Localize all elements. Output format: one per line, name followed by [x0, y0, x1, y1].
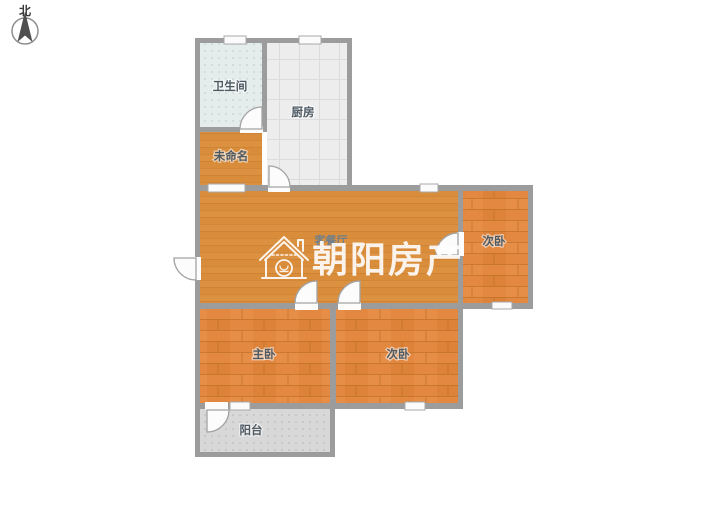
door-arc-entry — [174, 258, 196, 280]
wall-left — [195, 38, 200, 457]
wall-bathroom-kitchen — [262, 43, 267, 132]
window-kitchen-top — [299, 36, 321, 44]
wall-bedroom-bottom-right — [458, 303, 463, 409]
window-living-top — [420, 184, 438, 192]
wall-living-top — [195, 185, 533, 191]
wall-bedroom-tr-right — [528, 185, 533, 309]
window-bedroom-bottom — [405, 402, 425, 410]
watermark-text: 朝阳房产 — [312, 239, 464, 280]
floor-plan-canvas: 北 — [0, 0, 720, 515]
wall-living-bottom — [195, 303, 533, 309]
wall-balcony-bottom — [195, 452, 335, 457]
room-bedroom-bottom-label: 次卧 — [387, 347, 410, 361]
window-bedroom-tr-bottom — [492, 302, 512, 309]
room-balcony-label: 阳台 — [240, 423, 263, 437]
room-unnamed-label: 未命名 — [213, 149, 249, 163]
floor-plan-viewer: 北 — [0, 0, 720, 515]
room-bedroom-top-right-label: 次卧 — [483, 234, 506, 248]
wall-balcony-right — [330, 409, 335, 457]
room-bathroom-label: 卫生间 — [213, 79, 248, 93]
room-kitchen-label: 厨房 — [292, 105, 315, 119]
window-master-balcony — [230, 402, 250, 410]
wall-master-bedroom2 — [330, 309, 336, 403]
window-bathroom-top — [224, 36, 246, 44]
window-unnamed-bottom — [208, 184, 245, 192]
wall-kitchen-right — [347, 38, 352, 191]
wall-top — [195, 38, 352, 43]
door-gap-balcony — [205, 402, 228, 410]
north-compass: 北 — [12, 3, 38, 44]
room-master-bedroom-label: 主卧 — [253, 347, 276, 361]
